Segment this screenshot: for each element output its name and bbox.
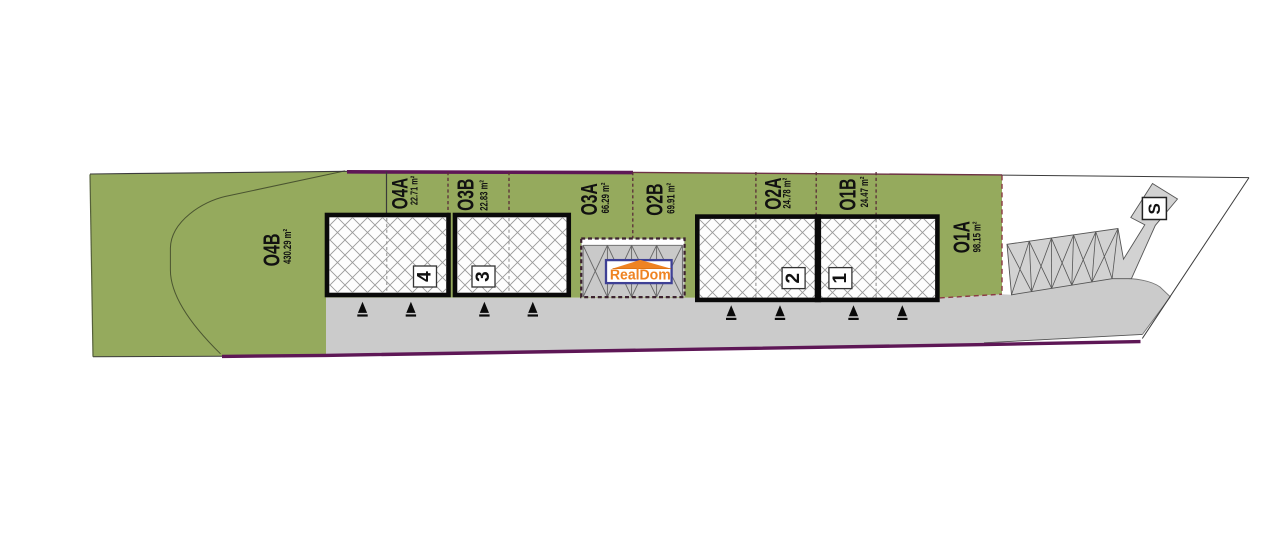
svg-text:1: 1 [830,272,851,283]
svg-text:22.71 m²: 22.71 m² [408,176,420,205]
svg-text:69.91 m²: 69.91 m² [665,183,678,214]
svg-text:3: 3 [473,271,494,282]
svg-text:24.47 m²: 24.47 m² [859,177,872,208]
svg-text:S: S [1145,203,1164,214]
svg-text:430.29 m²: 430.29 m² [282,229,295,264]
svg-text:RealDom: RealDom [610,267,671,283]
svg-text:O1B: O1B [836,179,862,211]
svg-text:66.29 m²: 66.29 m² [600,183,613,214]
svg-text:98.15 m²: 98.15 m² [971,222,984,253]
svg-text:4: 4 [415,271,436,282]
svg-text:2: 2 [783,273,804,284]
svg-text:O3B: O3B [454,179,480,211]
svg-text:22.83 m²: 22.83 m² [478,180,491,211]
svg-text:24.78 m²: 24.78 m² [781,178,794,209]
